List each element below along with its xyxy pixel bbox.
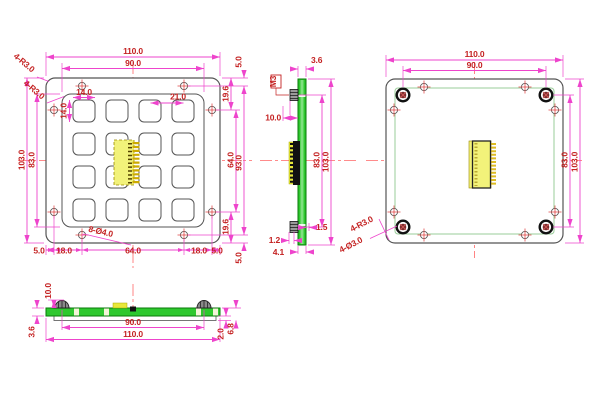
back-view: 110.0 90.0 83.0 103.0 4-R3.0 4-Ø3.0 [337, 49, 584, 258]
dim-back-stud-spacing-v: 83.0 [560, 152, 570, 168]
dim-front-width-outer: 110.0 [123, 46, 143, 56]
dim-screw-height: 10.0 [43, 283, 53, 299]
dim-stack-thickness: 4.1 [273, 247, 285, 257]
stud-screw-side [196, 301, 213, 309]
stud-screw-side [290, 90, 298, 101]
dim-edge-to-hole-top: 5.0 [234, 56, 244, 68]
dim-stud-spacing: 90.0 [125, 317, 141, 327]
dim-bottom-5-right: 5.0 [211, 246, 223, 256]
dim-back-stud-spacing-h: 90.0 [467, 60, 483, 70]
dim-lip-thickness: 2.0 [216, 328, 226, 340]
side-view: 3.6 M3 10.0 83.0 103.0 1.5 1.2 4.1 [260, 55, 356, 257]
dim-bottom-18-left: 18.0 [56, 246, 72, 256]
callout-back-corner-radius: 4-R3.0 [348, 214, 375, 234]
dim-total-thickness: 6.8 [226, 323, 236, 335]
dim-key-width: 14.0 [76, 87, 92, 97]
dim-side-height: 103.0 [321, 151, 331, 172]
dim-connector-offset: 1.2 [269, 235, 281, 245]
side-connector [289, 141, 300, 185]
front-view: 110.0 90.0 14.0 14.0 21.0 103.0 83.0 19.… [12, 46, 252, 268]
dim-edge-to-sidehole-top: 19.6 [221, 86, 231, 102]
pcb-hole-mark [213, 309, 218, 316]
connector-tab [113, 303, 127, 308]
connector-edge [130, 307, 136, 312]
dim-side-thickness: 3.6 [311, 55, 323, 65]
stud-screw [540, 89, 553, 102]
pcb-hole-mark [104, 309, 109, 316]
dim-back-height-outer: 103.0 [570, 151, 580, 172]
back-connector [469, 141, 493, 188]
dim-back-width-outer: 110.0 [465, 49, 485, 59]
thread-spec-label: M3 [268, 75, 278, 87]
dim-bottom-5-left: 5.0 [33, 246, 45, 256]
dim-pcb-thickness: 3.6 [27, 326, 37, 338]
stud-screw-side [290, 222, 298, 233]
bottom-view: 10.0 3.6 90.0 110.0 2.0 6.8 [27, 283, 242, 342]
thread-leader [276, 88, 289, 95]
dim-front-height-inner: 83.0 [27, 152, 37, 168]
dim-lip-offset: 1.5 [316, 222, 328, 232]
dim-key-pitch: 21.0 [170, 92, 186, 102]
stud-screw-side [54, 301, 71, 309]
dim-hole-rows-spacing: 93.0 [234, 155, 244, 171]
dim-front-width-inner: 90.0 [125, 58, 141, 68]
dim-edge-to-hole-bottom: 5.0 [234, 252, 244, 264]
dim-key-height: 14.0 [59, 103, 69, 119]
dim-screw-length: 10.0 [265, 113, 281, 123]
front-connector [114, 140, 136, 185]
stud-screw [397, 221, 410, 234]
stud-screw [397, 89, 410, 102]
dim-front-height-outer: 103.0 [17, 149, 27, 170]
dim-bottom-64: 64.0 [125, 246, 141, 256]
stud-screw [540, 221, 553, 234]
callout-back-stud-holes: 4-Ø3.0 [337, 234, 364, 254]
dim-edge-to-sidehole-bottom: 19.6 [221, 219, 231, 235]
dim-total-width: 110.0 [123, 329, 143, 339]
callout-front-corner-radius-1: 4-R3.0 [12, 51, 37, 75]
pcb-hole-mark [196, 309, 201, 316]
keypad-engineering-drawing: 110.0 90.0 14.0 14.0 21.0 103.0 83.0 19.… [0, 0, 600, 400]
callout-front-corner-radius-2: 4-R3.0 [22, 78, 47, 102]
dim-bottom-18-right: 18.0 [191, 246, 207, 256]
pcb-hole-mark [74, 309, 79, 316]
